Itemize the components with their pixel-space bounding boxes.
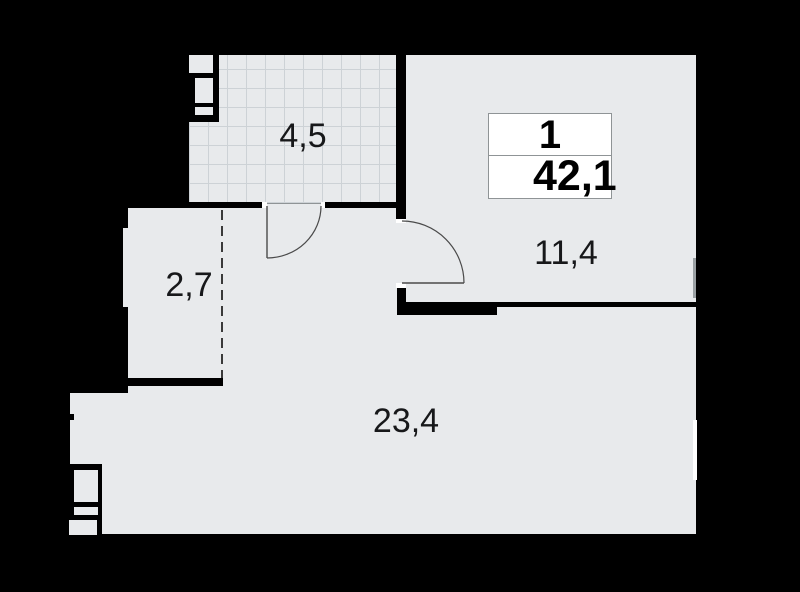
apartment-info-box: 1 42,1 — [488, 113, 612, 199]
doorway-gap — [396, 223, 406, 283]
window-cell — [69, 520, 97, 535]
wall-hall-bottom — [128, 378, 223, 386]
wall-main-bottom-thin — [497, 302, 698, 307]
window-cell — [195, 78, 213, 103]
floor-plan: 4,5 11,4 2,7 23,4 1 42,1 — [0, 0, 800, 592]
total-area: 42,1 — [489, 156, 611, 197]
window-cell — [74, 507, 98, 515]
window-cell — [195, 107, 213, 115]
rooms-count: 1 — [489, 114, 611, 156]
wall-tick-left — [70, 414, 74, 420]
room-area-living-upper — [397, 307, 696, 392]
door-jamb — [321, 202, 325, 208]
door-jamb — [396, 219, 406, 223]
room-label-balcony: 4,5 — [279, 119, 326, 153]
window-living-right — [693, 420, 697, 480]
room-area-living-left-lower — [102, 464, 128, 534]
wall-main-bottom-thick — [397, 302, 497, 315]
room-label-hall: 2,7 — [165, 268, 212, 302]
window-main-right — [693, 258, 696, 298]
window-cell — [74, 470, 98, 502]
room-label-living: 23,4 — [373, 404, 439, 438]
window-cell — [189, 55, 213, 73]
room-label-main: 11,4 — [534, 236, 598, 270]
window-frame-balcony-bar — [213, 55, 219, 73]
corridor-area — [222, 203, 398, 392]
wall-balcony-main-divider — [396, 55, 406, 219]
wall-balcony-bottom-left — [128, 202, 262, 208]
room-area-hall-notch — [123, 228, 128, 307]
wall-balcony-bottom-right — [325, 202, 399, 208]
door-jamb — [396, 283, 406, 288]
door-jamb — [262, 202, 267, 208]
room-area-living-left — [70, 393, 128, 464]
